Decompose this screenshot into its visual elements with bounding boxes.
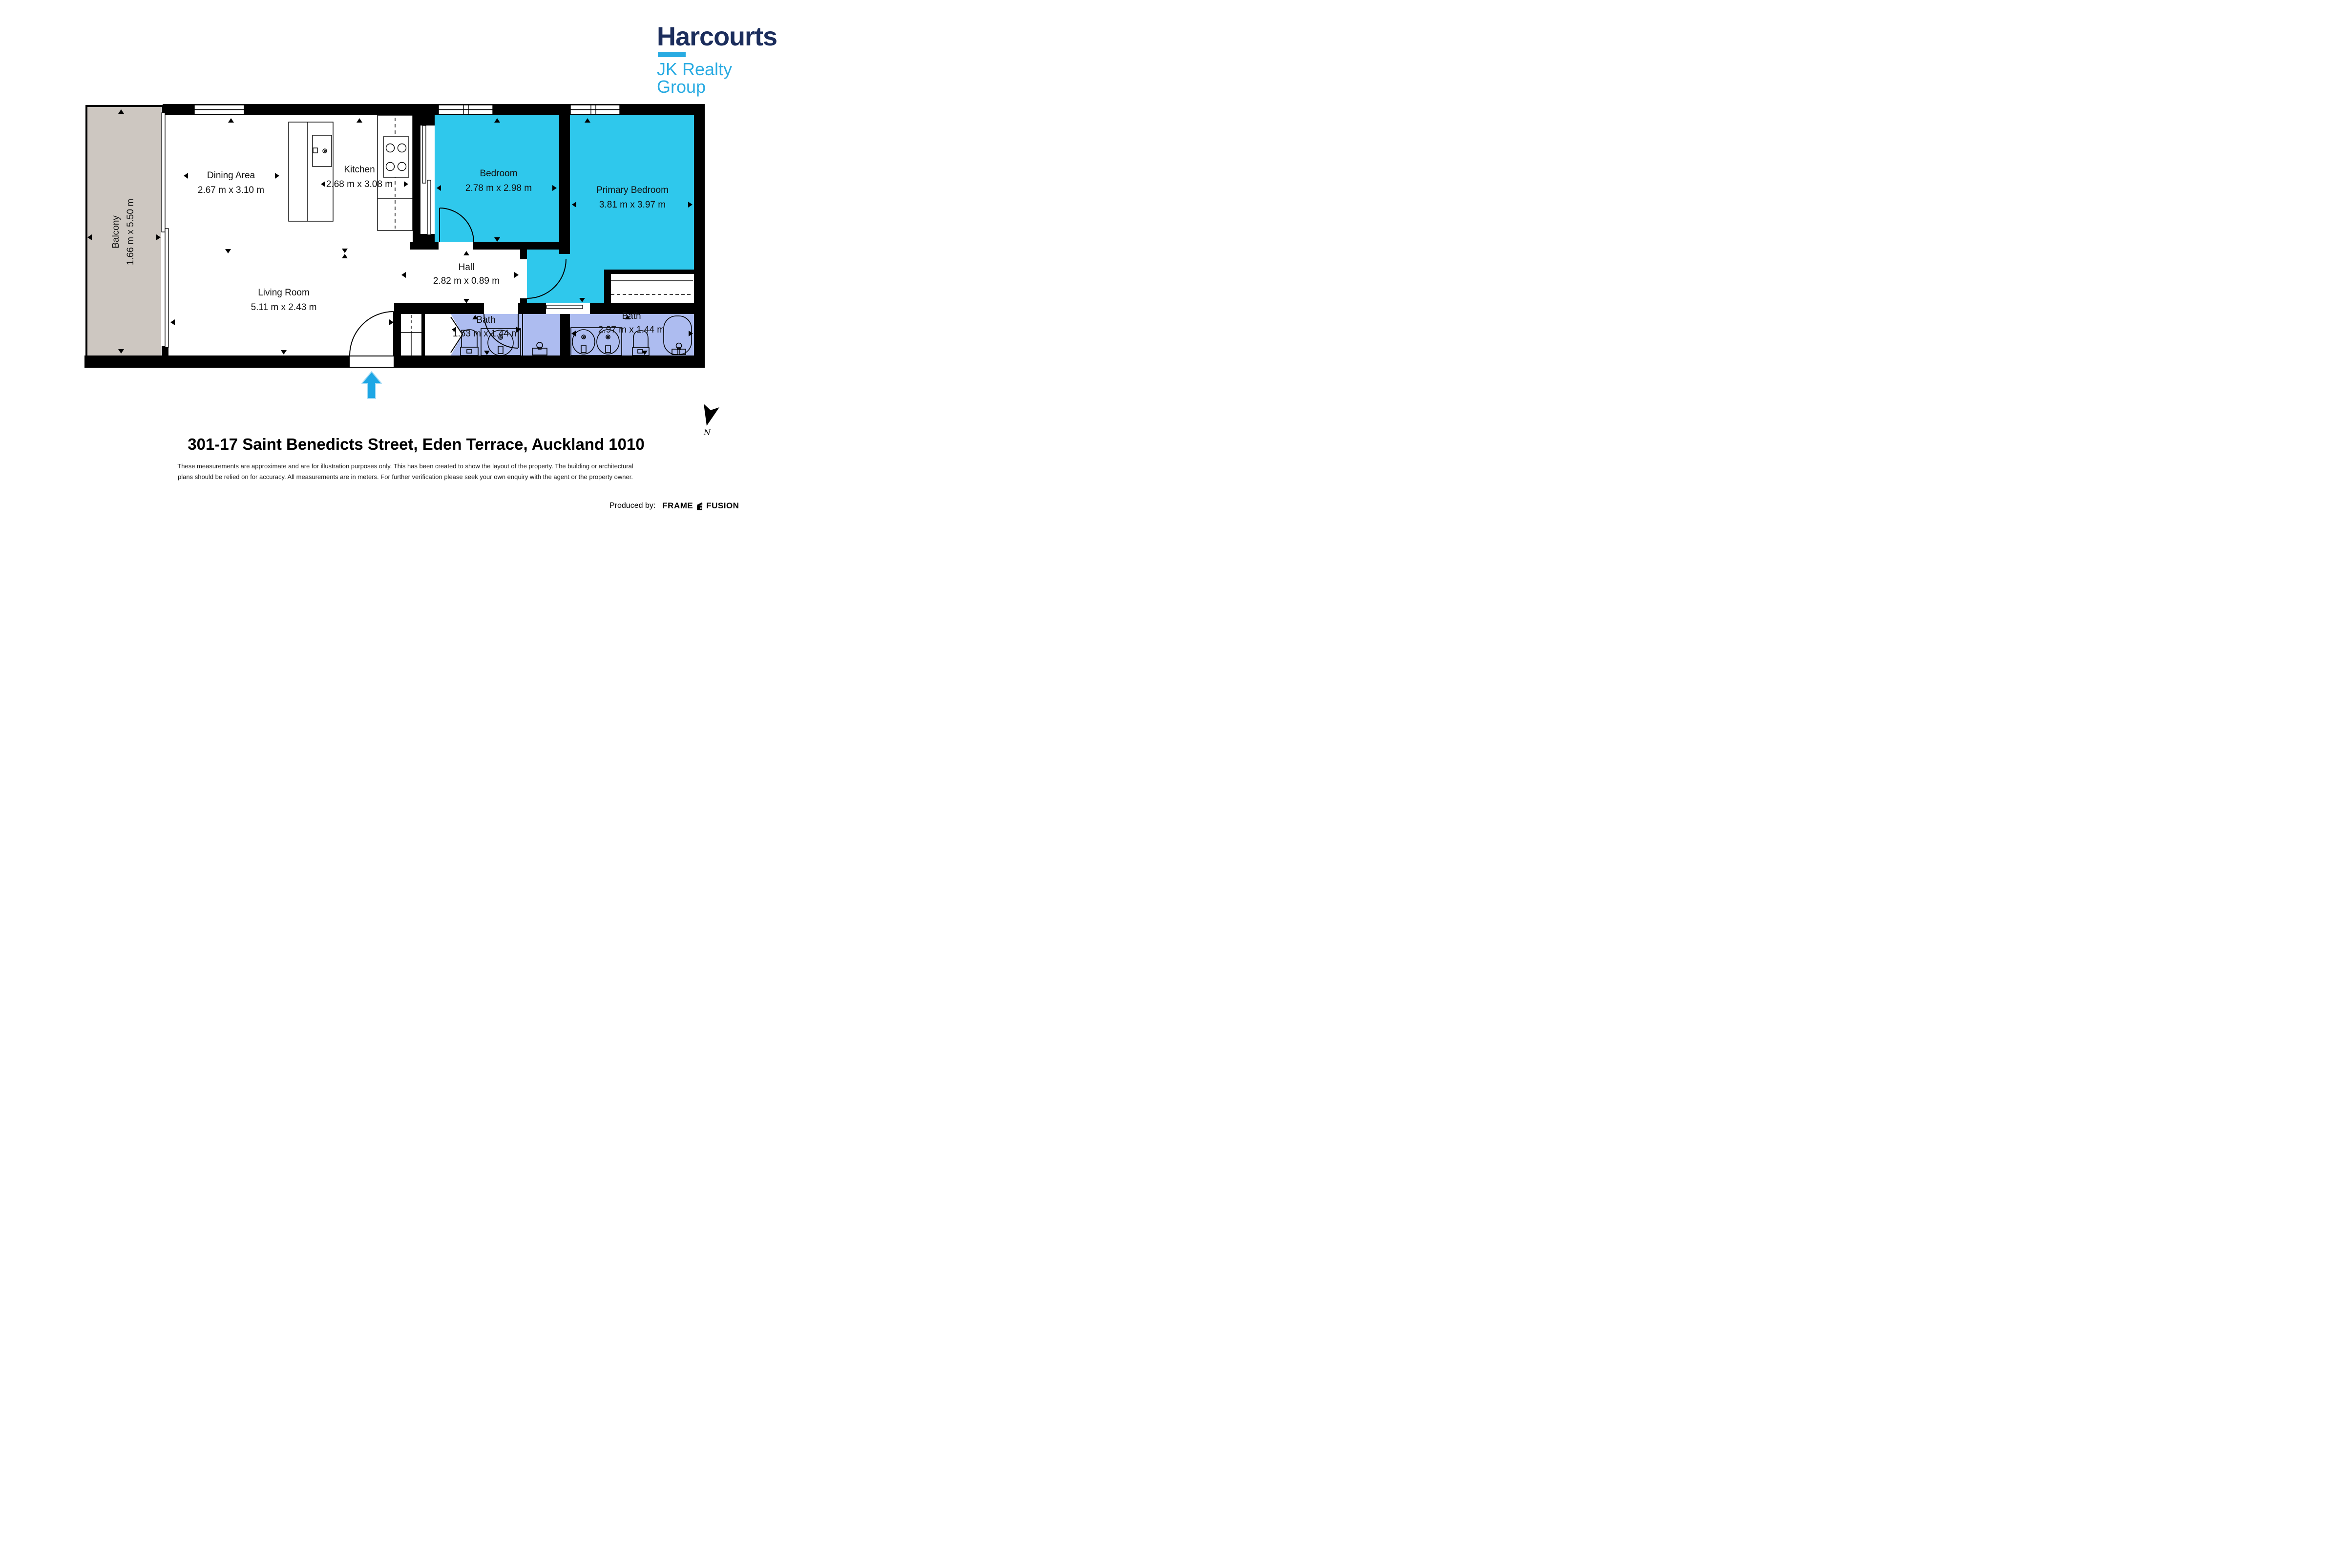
- disclaimer-line-1: These measurements are approximate and a…: [88, 461, 723, 472]
- producer-logo: FRAME FUSION: [662, 501, 739, 511]
- room-name: Balcony: [111, 215, 121, 249]
- dining-label: Dining Area 2.67 m x 3.10 m: [198, 170, 264, 195]
- closet: [401, 315, 421, 355]
- kitchen-counter: [378, 115, 413, 230]
- room-name: Hall: [459, 262, 475, 272]
- room-dims: 1.66 m x 5.50 m: [126, 199, 136, 265]
- room-dims: 2.82 m x 0.89 m: [433, 276, 500, 286]
- balcony-floor: [87, 106, 161, 355]
- room-name: Bedroom: [480, 168, 517, 179]
- entry-door: [350, 312, 394, 355]
- brand-group-name: JK Realty Group: [657, 61, 779, 96]
- room-dims: 1.53 m x 1.44 m: [453, 329, 519, 339]
- floor-plan: Balcony 1.66 m x 5.50 m Dining Area 2.67…: [84, 104, 705, 368]
- hall-label: Hall 2.82 m x 0.89 m: [433, 262, 500, 286]
- room-dims: 2.97 m x 1.44 m: [598, 325, 665, 335]
- bedroom-sliding-door: [422, 125, 431, 235]
- room-dims: 2.68 m x 3.08 m: [326, 179, 393, 189]
- page: Harcourts JK Realty Group: [0, 0, 784, 523]
- room-dims: 5.11 m x 2.43 m: [251, 302, 317, 313]
- room-dims: 2.78 m x 2.98 m: [465, 183, 532, 193]
- entry-door-gap: [350, 356, 394, 367]
- primary-bedroom-floor2: [570, 270, 604, 303]
- kitchen-island: [289, 122, 333, 221]
- room-dims: 2.67 m x 3.10 m: [198, 185, 264, 195]
- entrance-arrow-icon: [357, 370, 388, 401]
- producer-word-2: FUSION: [706, 501, 739, 511]
- brand-name: Harcourts: [657, 23, 779, 50]
- bedroom-floor: [435, 115, 559, 242]
- produced-by: Produced by: FRAME FUSION: [609, 501, 739, 511]
- primary-bedroom-entry-floor: [527, 250, 570, 303]
- disclaimer: These measurements are approximate and a…: [88, 461, 723, 482]
- wardrobe: [611, 281, 693, 294]
- room-name: Living Room: [258, 288, 310, 298]
- balcony-sliding-doors: [162, 113, 168, 347]
- room-dims: 3.81 m x 3.97 m: [599, 200, 666, 210]
- disclaimer-line-2: plans should be relied on for accuracy. …: [88, 472, 723, 482]
- room-name: Dining Area: [207, 170, 255, 181]
- address-title: 301-17 Saint Benedicts Street, Eden Terr…: [99, 435, 734, 454]
- room-name: Bath: [622, 311, 641, 321]
- bath2-slider-panel: [546, 305, 583, 309]
- room-name: Kitchen: [344, 165, 375, 175]
- clapperboard-icon: [695, 502, 704, 510]
- brand-logo: Harcourts JK Realty Group: [657, 23, 779, 96]
- room-name: Primary Bedroom: [596, 185, 669, 195]
- brand-underline-bar: [658, 52, 686, 57]
- stove: [383, 137, 409, 177]
- living-room-label: Living Room 5.11 m x 2.43 m: [251, 288, 317, 313]
- producer-word-1: FRAME: [662, 501, 693, 511]
- room-name: Bath: [476, 315, 495, 325]
- produced-by-label: Produced by:: [609, 502, 655, 510]
